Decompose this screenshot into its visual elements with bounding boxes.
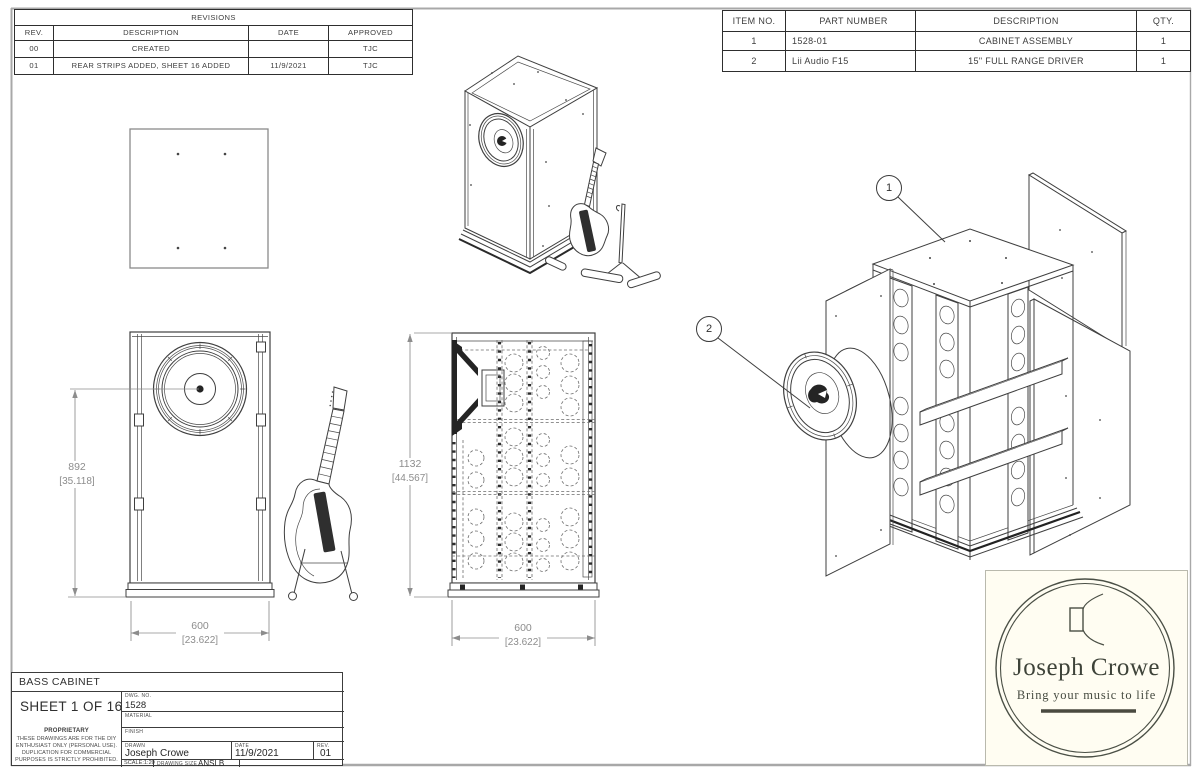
logo-tagline: Bring your music to life — [986, 688, 1187, 703]
proprietary-line: THESE DRAWINGS ARE FOR THE DIY — [14, 736, 119, 743]
dim-value: 600 — [177, 620, 223, 634]
description-cell: REAR STRIPS ADDED, SHEET 16 ADDED — [54, 58, 249, 74]
front-guitar — [284, 387, 357, 601]
dimension-section-width: 600 [23.622] — [499, 622, 547, 649]
exploded-view — [718, 173, 1130, 576]
dim-value: 892 — [55, 461, 99, 475]
part-cell: Lii Audio F15 — [786, 51, 916, 71]
callout-balloon-2: 2 — [696, 316, 722, 342]
revisions-title-row: REVISIONS — [15, 10, 412, 26]
parts-table: ITEM NO. PART NUMBER DESCRIPTION QTY. 1 … — [722, 10, 1191, 72]
description-col-header: DESCRIPTION — [54, 26, 249, 41]
rev-cell: 01 — [15, 58, 54, 74]
proprietary-line: ENTHUSIAST ONLY (PERSONAL USE). — [14, 743, 119, 750]
title-block: BASS CABINET SHEET 1 OF 16 PROPRIETARY T… — [11, 672, 343, 766]
drawing-size-label: DRAWING SIZE — [157, 761, 197, 767]
drawing-sheet: REVISIONS REV. DESCRIPTION DATE APPROVED… — [0, 0, 1192, 775]
date-value: 11/9/2021 — [235, 748, 279, 759]
drawn-by-value: Joseph Crowe — [125, 748, 189, 759]
parts-header-row: ITEM NO. PART NUMBER DESCRIPTION QTY. — [723, 11, 1190, 32]
project-title: BASS CABINET — [19, 676, 100, 688]
finish-label: FINISH — [125, 729, 143, 735]
qty-cell: 1 — [1137, 51, 1190, 71]
description-cell: CREATED — [54, 41, 249, 56]
logo-name: Joseph Crowe — [986, 654, 1187, 682]
section-view — [448, 333, 599, 597]
isometric-view — [459, 56, 661, 289]
dimension-section-height: 1132 [44.567] — [383, 458, 437, 485]
proprietary-title: PROPRIETARY — [12, 728, 121, 734]
rev-value: 01 — [320, 748, 331, 759]
rev-col-header: REV. — [15, 26, 54, 41]
proprietary-text: THESE DRAWINGS ARE FOR THE DIY ENTHUSIAS… — [14, 736, 119, 765]
part-col-header: PART NUMBER — [786, 11, 916, 31]
scale-value: SCALE:1:20 — [124, 760, 155, 766]
revisions-header-row: REV. DESCRIPTION DATE APPROVED — [15, 26, 412, 42]
item-col-header: ITEM NO. — [723, 11, 786, 31]
date-cell — [249, 41, 329, 56]
dim-alt-value: [44.567] — [384, 472, 436, 485]
top-view — [130, 129, 268, 268]
proprietary-line: PURPOSES IS STRICTLY PROHIBITED. — [14, 757, 119, 764]
revision-row: 01 REAR STRIPS ADDED, SHEET 16 ADDED 11/… — [15, 58, 412, 74]
qty-col-header: QTY. — [1137, 11, 1190, 31]
company-logo: Joseph Crowe Bring your music to life — [985, 570, 1188, 766]
dimension-front-width: 600 [23.622] — [176, 620, 224, 647]
front-view — [70, 332, 274, 597]
description-cell: 15" FULL RANGE DRIVER — [916, 51, 1137, 71]
approved-cell: TJC — [329, 41, 412, 56]
part-row: 2 Lii Audio F15 15" FULL RANGE DRIVER 1 — [723, 51, 1190, 71]
dim-value: 1132 — [384, 458, 436, 472]
proprietary-line: DUPLICATION FOR COMMERCIAL — [14, 750, 119, 757]
description-col-header: DESCRIPTION — [916, 11, 1137, 31]
revision-row: 00 CREATED TJC — [15, 41, 412, 57]
part-cell: 1528-01 — [786, 32, 916, 51]
date-col-header: DATE — [249, 26, 329, 41]
rev-cell: 00 — [15, 41, 54, 56]
dwg-no-label: DWG. NO. — [125, 693, 151, 699]
item-cell: 1 — [723, 32, 786, 51]
dim-value: 600 — [500, 622, 546, 636]
dim-alt-value: [23.622] — [500, 636, 546, 649]
drawing-size-value: ANSI B — [198, 759, 224, 768]
material-label: MATERIAL — [125, 713, 152, 719]
qty-cell: 1 — [1137, 32, 1190, 51]
revisions-title: REVISIONS — [15, 10, 412, 25]
description-cell: CABINET ASSEMBLY — [916, 32, 1137, 51]
revisions-table: REVISIONS REV. DESCRIPTION DATE APPROVED… — [14, 9, 413, 75]
date-cell: 11/9/2021 — [249, 58, 329, 74]
dimension-front-height: 892 [35.118] — [54, 461, 100, 488]
part-row: 1 1528-01 CABINET ASSEMBLY 1 — [723, 32, 1190, 52]
item-cell: 2 — [723, 51, 786, 71]
approved-cell: TJC — [329, 58, 412, 74]
approved-col-header: APPROVED — [329, 26, 412, 41]
sheet-number: SHEET 1 OF 16 — [20, 699, 123, 714]
dim-alt-value: [23.622] — [177, 634, 223, 647]
speaker-horn-icon — [1070, 594, 1104, 645]
callout-balloon-1: 1 — [876, 175, 902, 201]
dwg-no-value: 1528 — [125, 700, 146, 711]
dim-alt-value: [35.118] — [55, 475, 99, 488]
